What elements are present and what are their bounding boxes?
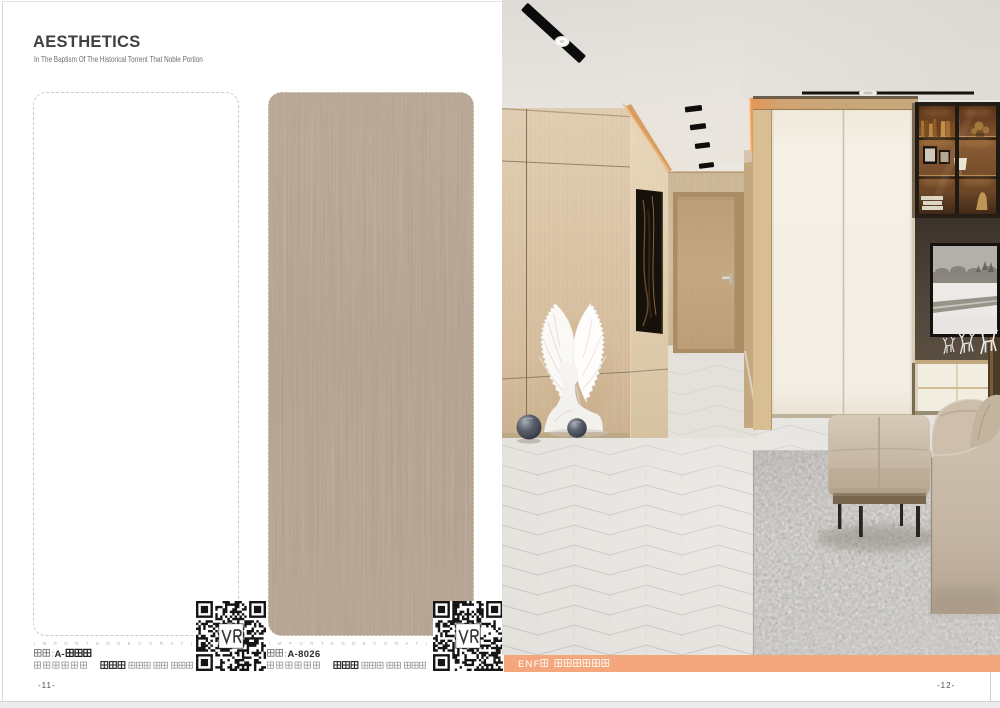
svg-text:ENF: ENF (518, 659, 541, 670)
svg-text:A-8026: A-8026 (288, 649, 321, 660)
svg-text:A-: A- (55, 649, 65, 660)
